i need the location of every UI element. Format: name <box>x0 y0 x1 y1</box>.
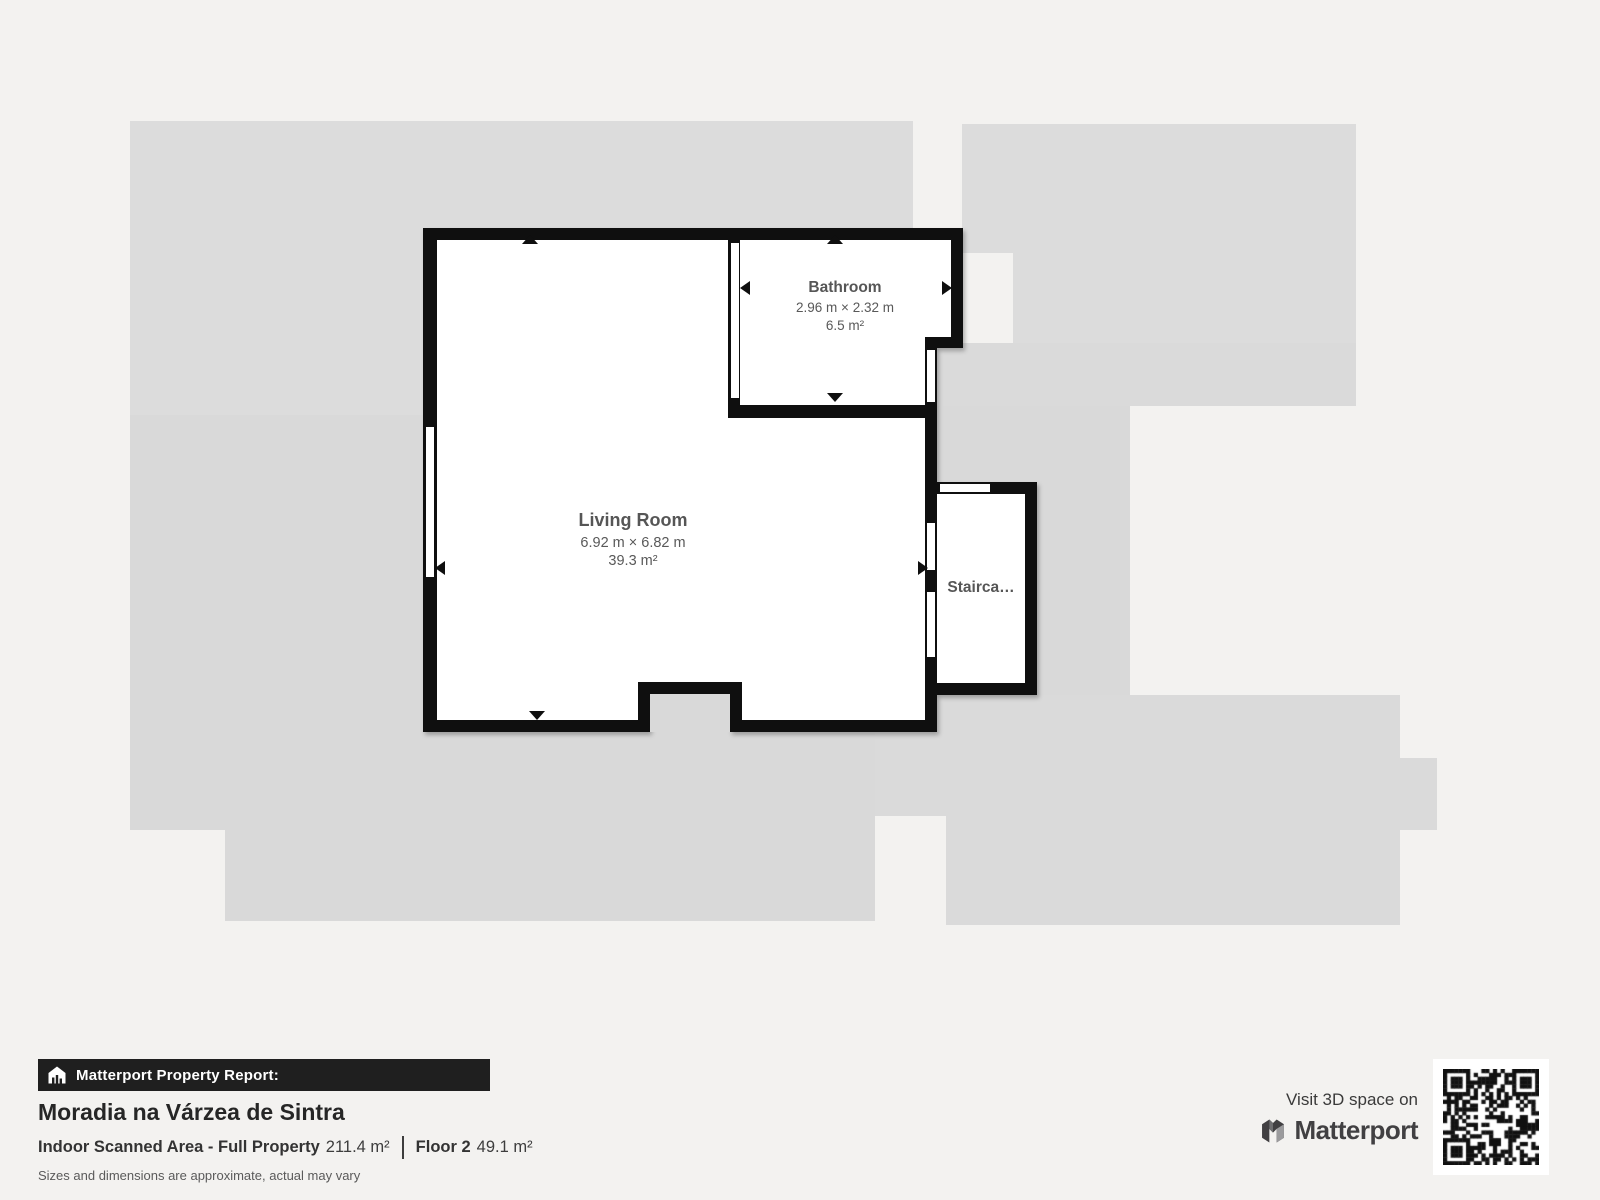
living-room-dimensions: 6.92 m × 6.82 m <box>580 535 685 551</box>
staircase-label: Stairca… <box>947 579 1014 596</box>
scanned-area-label: Indoor Scanned Area - Full Property <box>38 1138 320 1157</box>
report-footer: Matterport Property Report: Moradia na V… <box>38 1059 738 1183</box>
floor-label: Floor 2 <box>416 1138 471 1157</box>
property-report-page: Living Room 6.92 m × 6.82 m 39.3 m² Bath… <box>0 0 1600 1200</box>
window-right-wall-2 <box>927 592 935 657</box>
matterport-logo-icon <box>1261 1119 1285 1143</box>
qr-code-panel <box>1433 1059 1549 1175</box>
scanned-area-value: 211.4 m² <box>326 1138 390 1157</box>
report-header-label: Matterport Property Report: <box>76 1067 279 1084</box>
opening-staircase-top <box>940 484 990 492</box>
floor-value: 49.1 m² <box>477 1138 533 1157</box>
living-room-area: 39.3 m² <box>608 553 657 569</box>
bathroom-area: 6.5 m² <box>826 318 865 333</box>
matterport-promo: Visit 3D space on Matterport <box>1261 1090 1418 1146</box>
floorplan-canvas: Living Room 6.92 m × 6.82 m 39.3 m² Bath… <box>0 0 1600 1200</box>
door-bathroom <box>731 243 739 398</box>
brand-row: Matterport <box>1261 1115 1418 1146</box>
wall-notch-fill <box>650 694 730 732</box>
door-right-wall <box>927 350 935 402</box>
living-room-label: Living Room <box>579 510 688 530</box>
visit-3d-text: Visit 3D space on <box>1261 1090 1418 1110</box>
window-right-wall-1 <box>927 523 935 570</box>
house-icon <box>48 1066 66 1084</box>
bathroom-dimensions: 2.96 m × 2.32 m <box>796 300 894 315</box>
report-header-bar: Matterport Property Report: <box>38 1059 490 1091</box>
window-left-wall <box>426 427 434 577</box>
disclaimer-text: Sizes and dimensions are approximate, ac… <box>38 1168 738 1183</box>
bathroom-label: Bathroom <box>808 279 881 296</box>
info-separator <box>402 1136 404 1159</box>
matterport-wordmark: Matterport <box>1294 1115 1418 1146</box>
report-info-line: Indoor Scanned Area - Full Property 211.… <box>38 1136 738 1159</box>
qr-code <box>1443 1069 1539 1165</box>
property-title: Moradia na Várzea de Sintra <box>38 1099 738 1126</box>
